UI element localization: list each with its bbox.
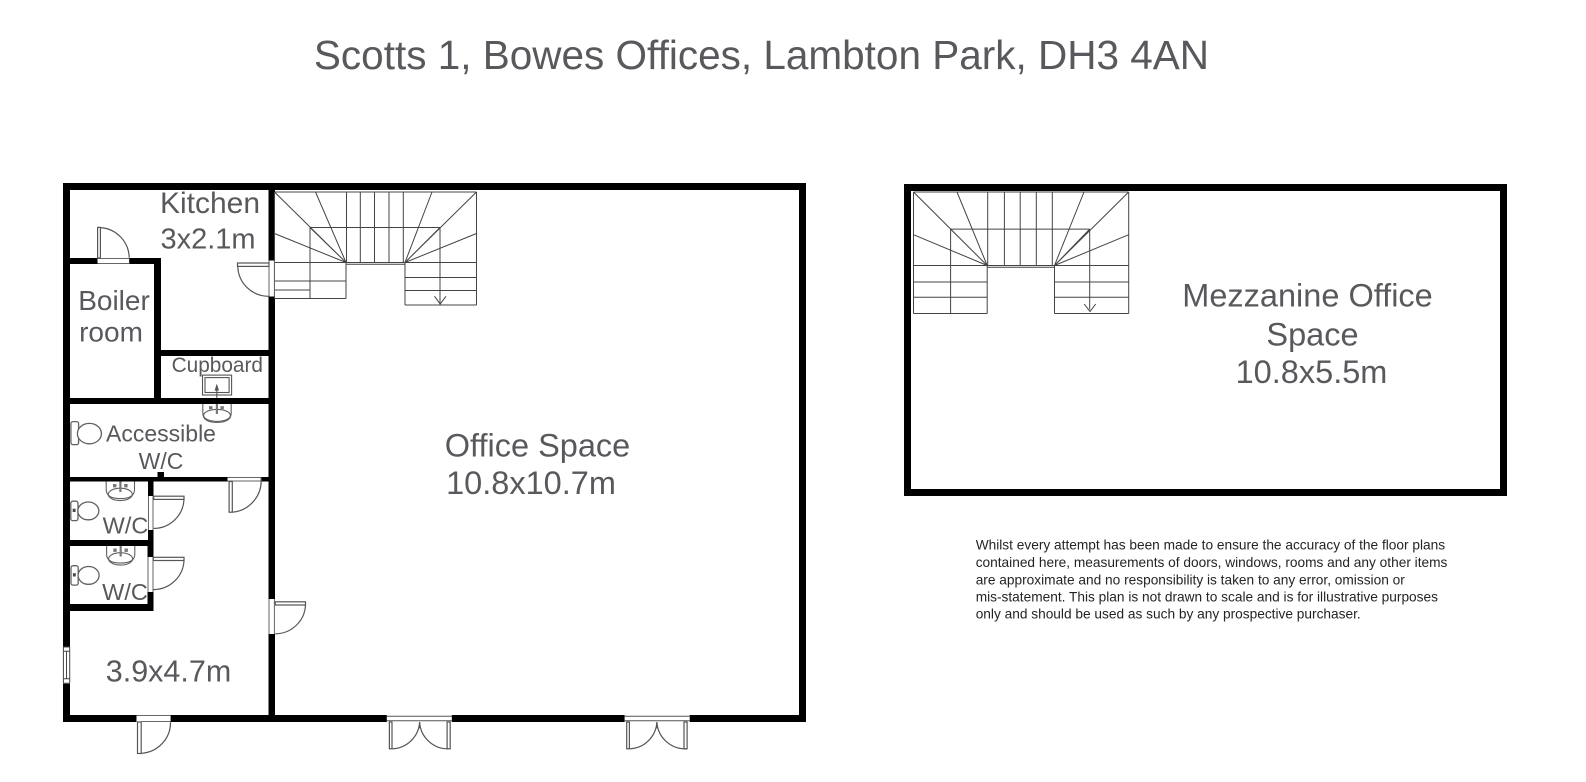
svg-text:10.8x5.5m: 10.8x5.5m [1236, 354, 1388, 390]
svg-text:Space: Space [1266, 317, 1358, 353]
svg-text:Whilst every attempt has been: Whilst every attempt has been made to en… [976, 538, 1446, 553]
svg-text:contained here, measurements o: contained here, measurements of doors, w… [976, 555, 1448, 570]
svg-text:W/C: W/C [103, 513, 149, 539]
svg-text:room: room [79, 317, 143, 348]
svg-text:W/C: W/C [102, 579, 148, 605]
svg-text:Kitchen: Kitchen [160, 187, 260, 220]
svg-text:Cupboard: Cupboard [172, 354, 263, 377]
svg-text:W/C: W/C [139, 448, 184, 474]
svg-text:10.8x10.7m: 10.8x10.7m [446, 465, 616, 501]
svg-text:Accessible: Accessible [106, 420, 216, 446]
svg-text:only and should be used as suc: only and should be used as such by any p… [976, 606, 1361, 621]
svg-text:are approximate and no respons: are approximate and no responsibility is… [976, 573, 1406, 588]
svg-text:Scotts 1, Bowes Offices, Lambt: Scotts 1, Bowes Offices, Lambton Park, D… [314, 32, 1209, 78]
svg-text:Boiler: Boiler [78, 285, 150, 316]
svg-text:3x2.1m: 3x2.1m [160, 223, 255, 255]
svg-text:3.9x4.7m: 3.9x4.7m [106, 655, 231, 689]
svg-text:Mezzanine Office: Mezzanine Office [1182, 278, 1433, 314]
svg-text:mis-statement. This plan is no: mis-statement. This plan is not drawn to… [976, 589, 1438, 604]
svg-text:Office Space: Office Space [445, 427, 630, 463]
